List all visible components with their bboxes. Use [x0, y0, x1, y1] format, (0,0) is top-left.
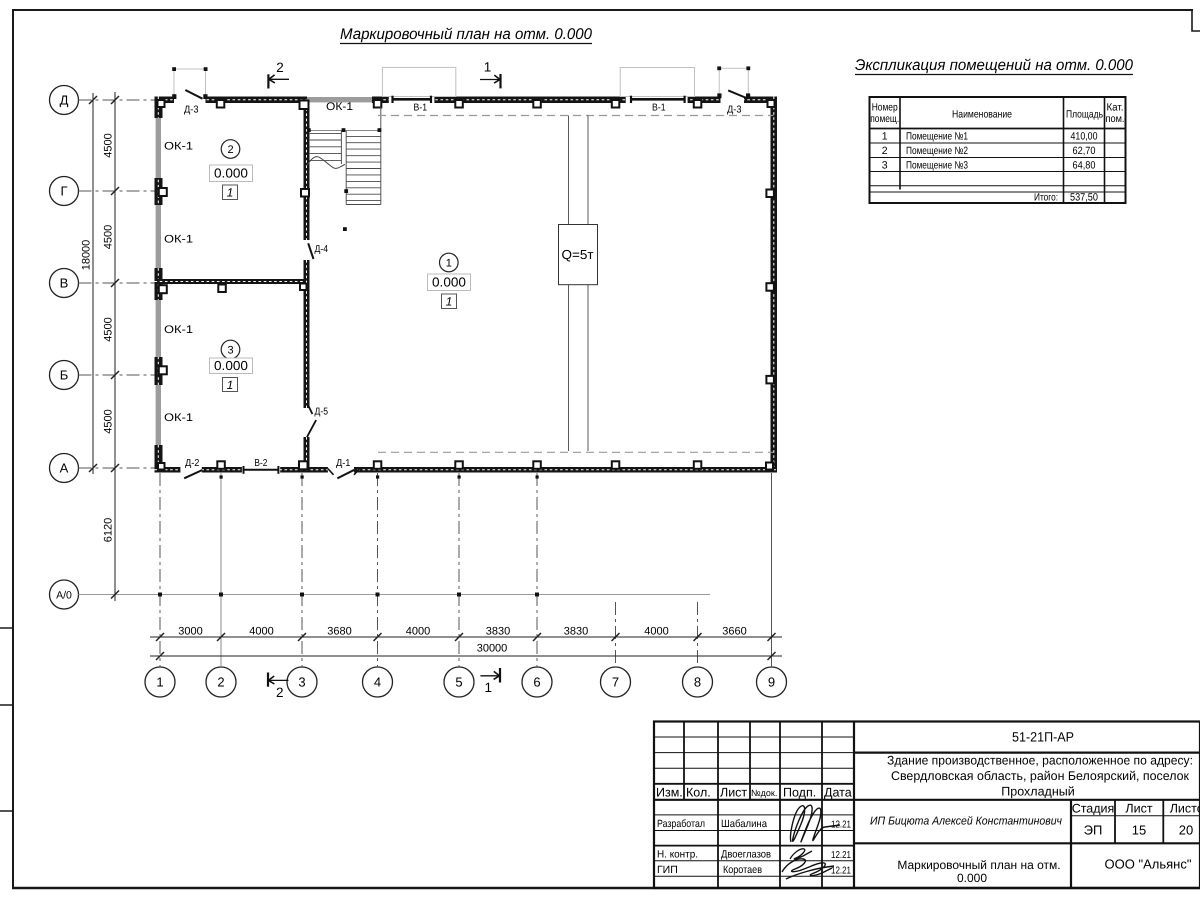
svg-text:Д-5: Д-5: [315, 407, 329, 418]
svg-text:В-1: В-1: [652, 103, 666, 114]
svg-text:Кол.: Кол.: [686, 786, 711, 800]
svg-text:3830: 3830: [564, 626, 588, 638]
svg-text:Д-1: Д-1: [336, 458, 351, 469]
svg-text:5: 5: [455, 675, 462, 690]
svg-text:пом.: пом.: [1106, 113, 1125, 125]
svg-text:1: 1: [156, 675, 163, 690]
svg-text:Лист: Лист: [720, 786, 747, 800]
svg-text:Коротаев: Коротаев: [723, 864, 762, 876]
svg-text:2: 2: [217, 675, 224, 690]
svg-text:4000: 4000: [249, 626, 273, 638]
svg-text:1: 1: [882, 131, 888, 143]
svg-text:6120: 6120: [103, 518, 115, 542]
svg-text:2: 2: [882, 145, 888, 157]
svg-text:ОК-1: ОК-1: [164, 324, 193, 336]
svg-text:4: 4: [374, 675, 381, 690]
svg-text:Итого:: Итого:: [1034, 192, 1058, 204]
svg-text:ОК-1: ОК-1: [326, 101, 353, 113]
svg-text:0.000: 0.000: [214, 166, 248, 181]
svg-text:Свердловская область, район Бе: Свердловская область, район Белоярский, …: [891, 769, 1190, 783]
svg-text:ООО "Альянс": ООО "Альянс": [1105, 857, 1192, 872]
svg-text:4000: 4000: [406, 626, 430, 638]
svg-text:15: 15: [1132, 823, 1146, 838]
svg-text:Д-4: Д-4: [315, 244, 329, 255]
svg-text:Лист: Лист: [1125, 801, 1152, 815]
svg-text:1: 1: [227, 186, 234, 200]
svg-text:1: 1: [227, 378, 234, 392]
svg-text:ОК-1: ОК-1: [164, 412, 193, 424]
svg-text:62,70: 62,70: [1073, 145, 1096, 157]
svg-text:помещ.: помещ.: [870, 113, 899, 125]
svg-text:Дата: Дата: [824, 786, 852, 800]
svg-text:4500: 4500: [103, 133, 115, 157]
svg-text:7: 7: [612, 675, 619, 690]
svg-text:Двоеглазов: Двоеглазов: [721, 849, 771, 861]
svg-text:В-1: В-1: [414, 103, 428, 114]
svg-text:В: В: [60, 276, 69, 291]
svg-text:4000: 4000: [644, 626, 668, 638]
svg-text:20: 20: [1179, 823, 1193, 838]
svg-text:1: 1: [446, 258, 452, 270]
svg-text:Д-2: Д-2: [185, 458, 200, 469]
svg-text:Помещение №2: Помещение №2: [906, 145, 968, 157]
svg-text:Д: Д: [60, 93, 69, 108]
svg-text:№док.: №док.: [751, 788, 777, 798]
svg-text:9: 9: [768, 675, 775, 690]
svg-text:12.21: 12.21: [831, 820, 851, 831]
svg-text:410,00: 410,00: [1071, 131, 1098, 143]
svg-text:Подп.: Подп.: [783, 786, 816, 800]
svg-text:Стадия: Стадия: [1072, 801, 1115, 815]
svg-text:12.21: 12.21: [831, 865, 851, 876]
svg-text:18000: 18000: [81, 240, 93, 271]
svg-text:3: 3: [882, 159, 888, 171]
svg-text:12.21: 12.21: [831, 850, 851, 861]
svg-text:0.000: 0.000: [957, 871, 987, 885]
svg-text:3680: 3680: [327, 626, 351, 638]
svg-text:1: 1: [446, 295, 453, 309]
svg-text:Б: Б: [60, 368, 69, 383]
svg-text:Номер: Номер: [872, 102, 898, 114]
svg-text:Шабалина: Шабалина: [721, 818, 767, 830]
svg-text:2: 2: [276, 685, 284, 700]
svg-text:ЭП: ЭП: [1084, 823, 1103, 838]
svg-text:А/0: А/0: [56, 590, 72, 602]
svg-text:Изм.: Изм.: [656, 786, 683, 800]
svg-text:Q=5т: Q=5т: [562, 247, 594, 262]
svg-text:1: 1: [484, 60, 492, 75]
svg-text:4500: 4500: [103, 409, 115, 433]
svg-text:Д-3: Д-3: [727, 105, 742, 116]
svg-text:Разработал: Разработал: [657, 818, 705, 830]
svg-text:51-21П-АР: 51-21П-АР: [1012, 730, 1074, 745]
svg-text:Наименование: Наименование: [952, 109, 1012, 121]
svg-text:3660: 3660: [722, 626, 746, 638]
svg-text:0.000: 0.000: [432, 275, 466, 290]
svg-text:Н. контр.: Н. контр.: [657, 849, 698, 861]
svg-text:2: 2: [276, 60, 284, 75]
svg-text:Г: Г: [60, 184, 67, 199]
svg-text:0.000: 0.000: [214, 358, 248, 373]
svg-text:3: 3: [227, 345, 233, 357]
svg-text:Экспликация помещений на отм.: Экспликация помещений на отм. 0.000: [855, 57, 1133, 74]
svg-text:Прохладный: Прохладный: [1001, 785, 1074, 799]
svg-text:3830: 3830: [486, 626, 510, 638]
svg-text:Д-3: Д-3: [184, 105, 199, 116]
svg-text:3000: 3000: [178, 626, 202, 638]
svg-text:ОК-1: ОК-1: [164, 141, 193, 153]
svg-text:6: 6: [533, 675, 540, 690]
svg-text:Площадь: Площадь: [1066, 109, 1103, 121]
svg-text:1: 1: [485, 680, 493, 695]
svg-text:4500: 4500: [103, 225, 115, 249]
svg-text:А: А: [60, 461, 69, 476]
svg-text:Здание производственное, распо: Здание производственное, расположенное п…: [887, 754, 1193, 768]
svg-text:3: 3: [298, 675, 305, 690]
svg-text:ОК-1: ОК-1: [164, 234, 193, 246]
svg-text:Кат.: Кат.: [1107, 102, 1124, 114]
svg-text:ГИП: ГИП: [657, 864, 678, 876]
svg-text:4500: 4500: [103, 317, 115, 341]
svg-text:Помещение №3: Помещение №3: [906, 159, 968, 171]
svg-text:64,80: 64,80: [1073, 159, 1096, 171]
svg-text:8: 8: [694, 675, 701, 690]
svg-text:30000: 30000: [477, 643, 508, 655]
svg-text:Маркировочный план на отм. 0.0: Маркировочный план на отм. 0.000: [340, 26, 592, 43]
svg-text:Помещение №1: Помещение №1: [906, 131, 968, 143]
svg-text:2: 2: [227, 144, 233, 156]
svg-text:ИП Бицюта Алексей Константинов: ИП Бицюта Алексей Константинович: [870, 816, 1062, 828]
svg-text:В-2: В-2: [254, 458, 267, 469]
svg-text:537,50: 537,50: [1070, 192, 1098, 204]
svg-text:Листов: Листов: [1170, 801, 1200, 815]
